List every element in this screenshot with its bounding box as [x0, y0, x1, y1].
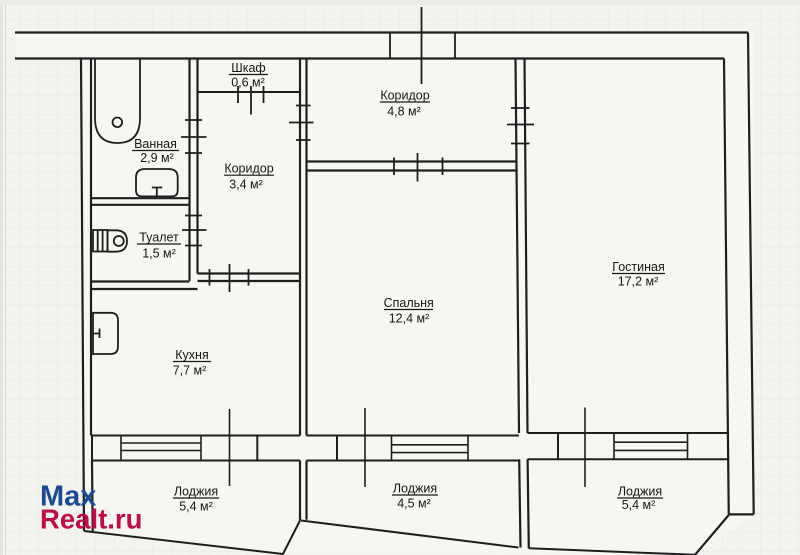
svg-text:0,6 м²: 0,6 м² — [231, 76, 265, 90]
svg-text:4,5 м²: 4,5 м² — [397, 497, 431, 511]
svg-text:Лоджия: Лоджия — [174, 485, 218, 499]
svg-text:Коридор: Коридор — [380, 89, 429, 103]
svg-text:Шкаф: Шкаф — [231, 61, 265, 75]
svg-text:5,4 м²: 5,4 м² — [179, 500, 213, 514]
svg-text:Гостиная: Гостиная — [612, 260, 664, 274]
svg-text:17,2 м²: 17,2 м² — [618, 275, 659, 289]
svg-text:Кухня: Кухня — [175, 348, 208, 362]
svg-text:Лоджия: Лоджия — [393, 482, 437, 496]
svg-text:7,7 м²: 7,7 м² — [173, 364, 207, 378]
svg-text:Realt.ru: Realt.ru — [40, 504, 142, 535]
svg-text:12,4 м²: 12,4 м² — [389, 312, 430, 326]
svg-text:2,9 м²: 2,9 м² — [140, 151, 174, 165]
svg-text:4,8 м²: 4,8 м² — [387, 105, 421, 119]
svg-text:5,4 м²: 5,4 м² — [622, 498, 656, 512]
svg-text:Коридор: Коридор — [224, 162, 273, 176]
svg-text:1,5 м²: 1,5 м² — [142, 246, 176, 260]
svg-text:Ванная: Ванная — [134, 137, 177, 151]
svg-text:Лоджия: Лоджия — [618, 485, 662, 499]
svg-text:3,4 м²: 3,4 м² — [229, 178, 263, 192]
svg-text:Спальня: Спальня — [384, 296, 434, 310]
svg-text:Туалет: Туалет — [139, 231, 179, 245]
